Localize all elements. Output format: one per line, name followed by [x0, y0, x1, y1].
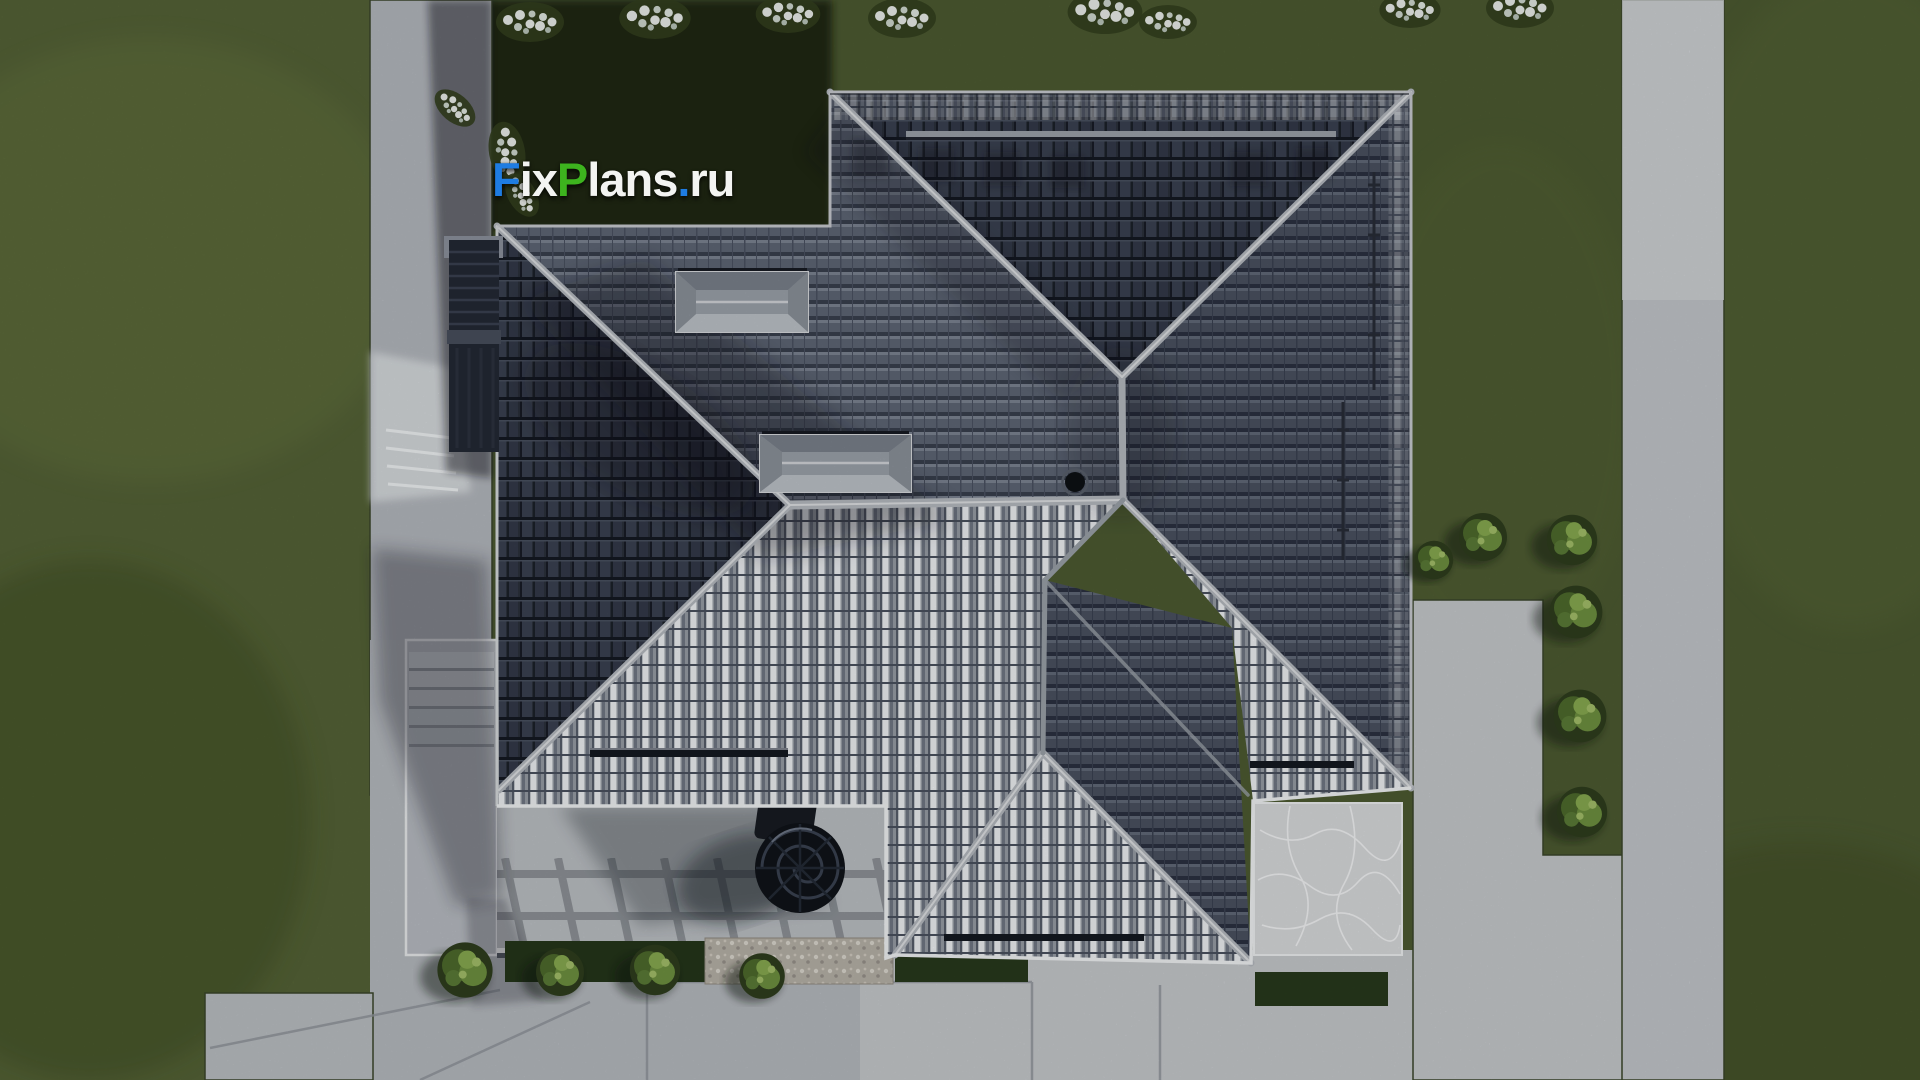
logo-letters-ru: ru — [689, 153, 734, 206]
aerial-render-scene: FixPlans.ru FixPlans.ru FixPlans.ru cons… — [0, 0, 1920, 1080]
grain-overlay — [0, 0, 1920, 1080]
site-logo: FixPlans.ru FixPlans.ru FixPlans.ru — [492, 152, 734, 207]
logo-letters-lans: lans — [587, 153, 677, 206]
logo-letters-ix: ix — [520, 153, 557, 206]
scene-canvas — [0, 0, 1920, 1080]
logo-dot: . — [677, 153, 689, 206]
logo-letter-p: P — [557, 153, 587, 206]
logo-letter-f: F — [492, 153, 520, 206]
